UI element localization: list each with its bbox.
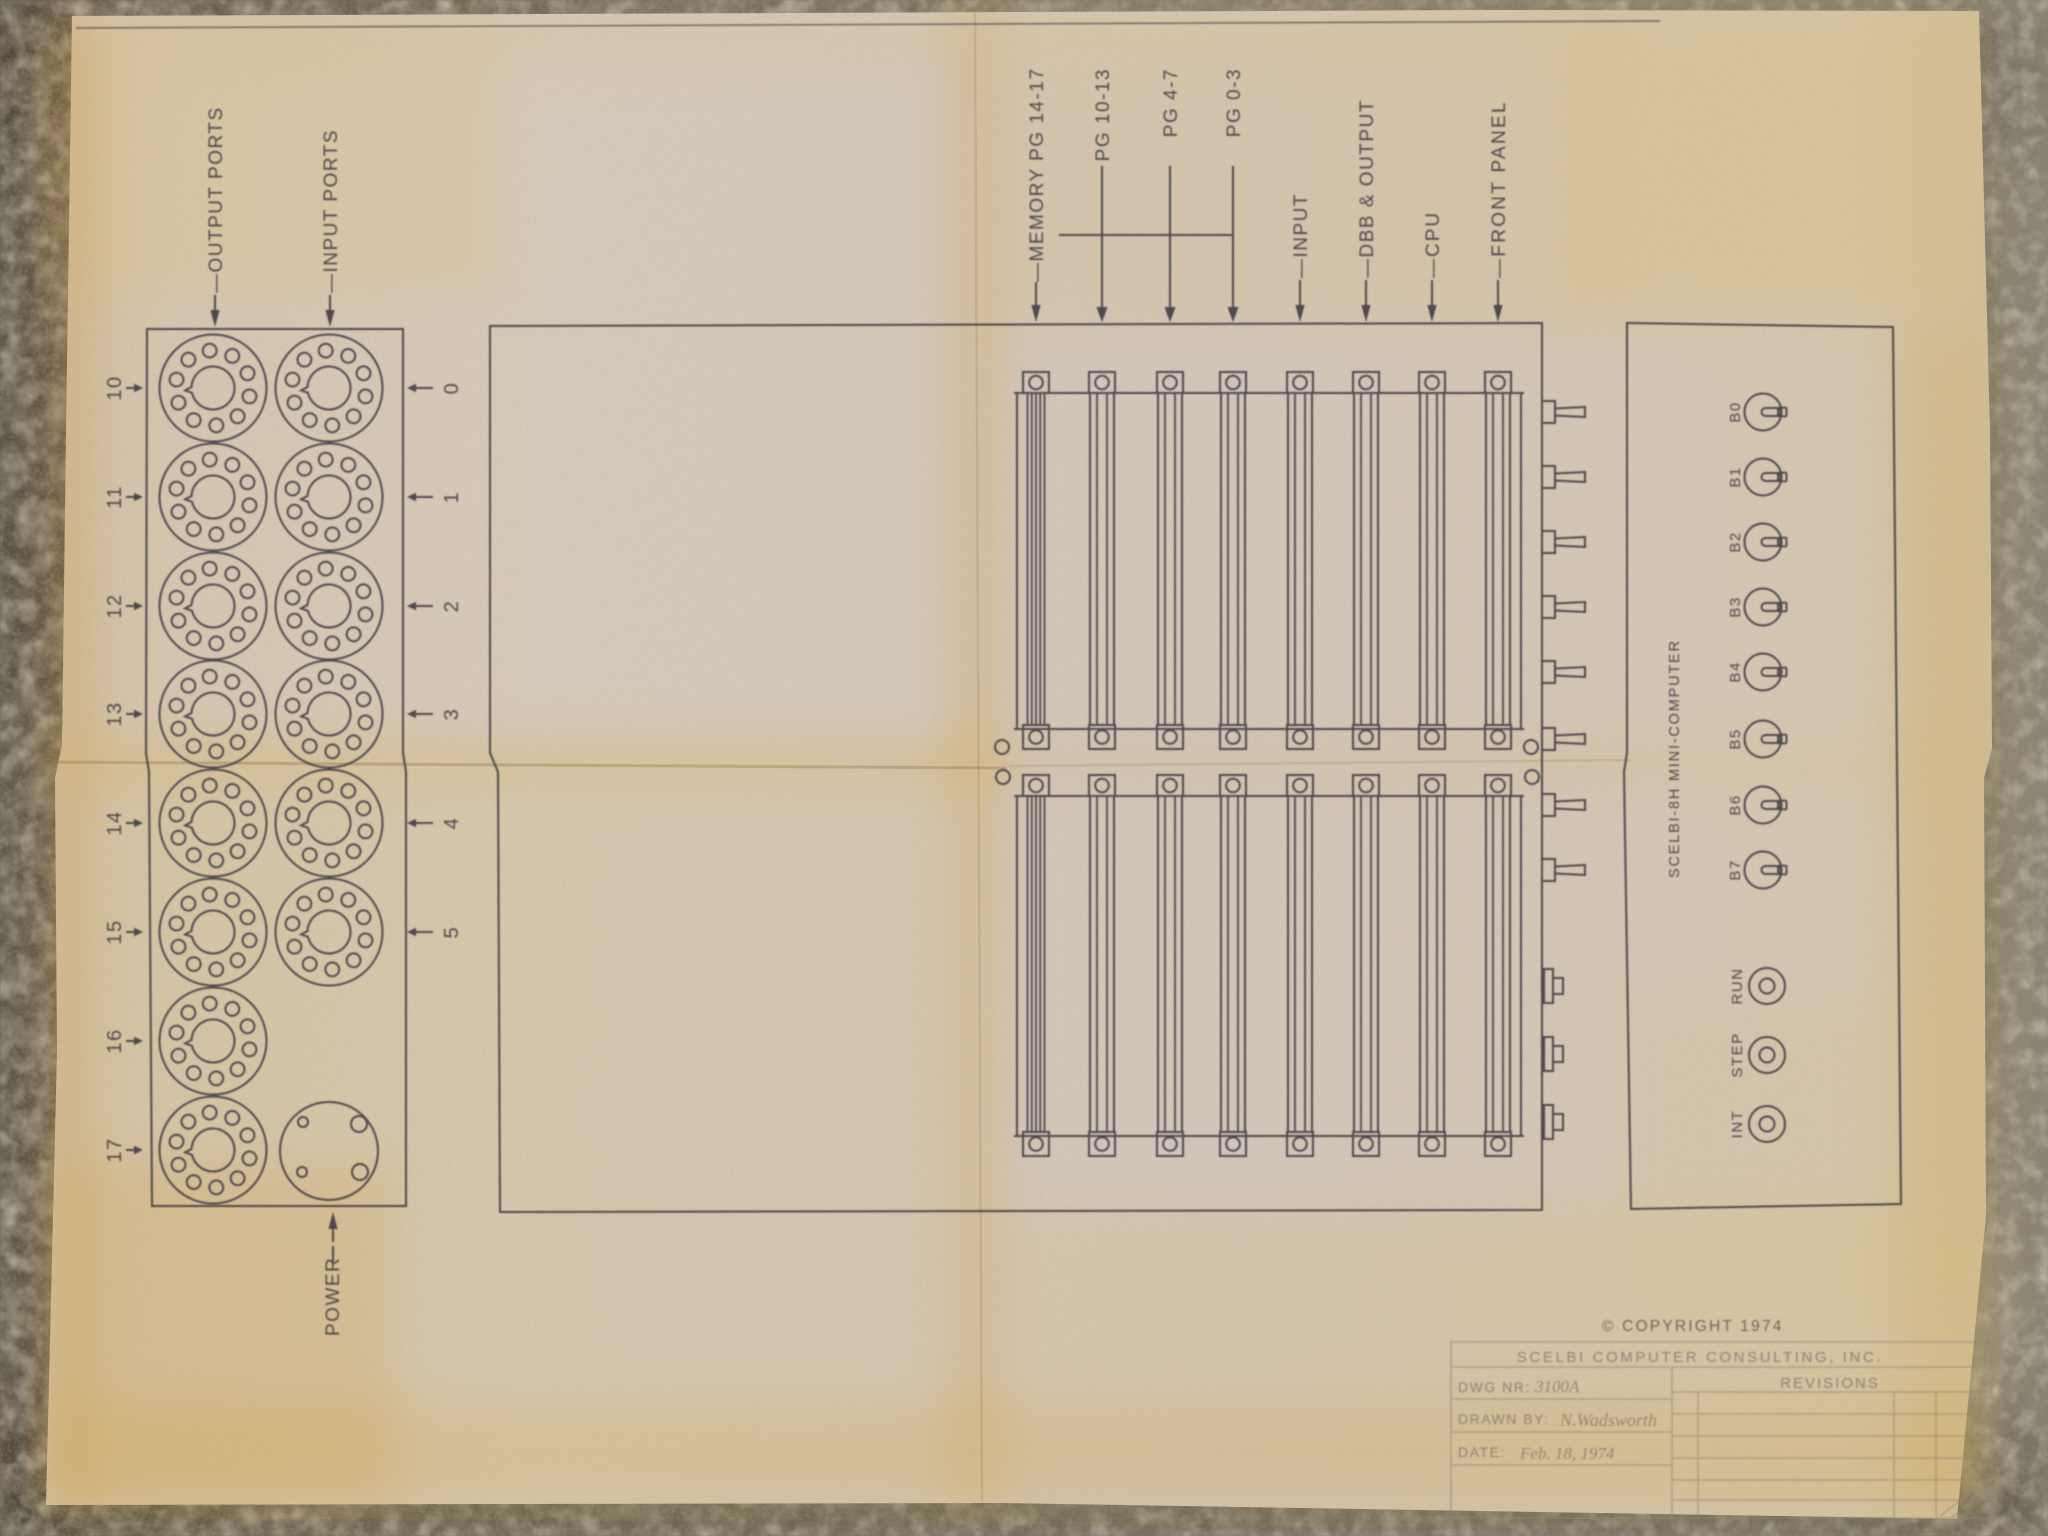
svg-text:—CPU: —CPU — [1423, 211, 1444, 278]
svg-text:10: 10 — [104, 375, 126, 400]
svg-text:11: 11 — [104, 485, 126, 509]
svg-text:POWER: POWER — [323, 1257, 344, 1336]
svg-text:15: 15 — [104, 919, 126, 944]
svg-text:0: 0 — [441, 382, 463, 395]
svg-text:N.Wadsworth: N.Wadsworth — [1559, 1410, 1657, 1430]
svg-text:2: 2 — [441, 600, 463, 613]
svg-text:B6: B6 — [1727, 794, 1744, 815]
svg-text:13: 13 — [104, 701, 126, 726]
svg-text:—DBB & OUTPUT: —DBB & OUTPUT — [1357, 99, 1378, 278]
svg-text:SCELBI-8H MINI-COMPUTER: SCELBI-8H MINI-COMPUTER — [1667, 639, 1683, 878]
svg-text:B7: B7 — [1727, 859, 1744, 880]
svg-text:INT: INT — [1729, 1110, 1746, 1139]
svg-text:B5: B5 — [1727, 728, 1744, 749]
svg-text:© COPYRIGHT 1974: © COPYRIGHT 1974 — [1602, 1318, 1784, 1335]
svg-text:—MEMORY PG 14-17: —MEMORY PG 14-17 — [1027, 68, 1048, 282]
svg-text:B3: B3 — [1727, 596, 1744, 617]
svg-text:—INPUT PORTS: —INPUT PORTS — [321, 129, 342, 293]
svg-text:14: 14 — [104, 810, 126, 835]
svg-text:B2: B2 — [1727, 531, 1744, 552]
svg-text:PG 4-7: PG 4-7 — [1161, 68, 1182, 137]
svg-text:B0: B0 — [1727, 401, 1744, 422]
svg-text:1: 1 — [441, 491, 463, 504]
svg-text:17: 17 — [104, 1137, 126, 1162]
svg-text:DWG NR:: DWG NR: — [1458, 1379, 1531, 1395]
svg-text:12: 12 — [104, 593, 126, 618]
svg-text:16: 16 — [104, 1028, 126, 1053]
svg-text:B1: B1 — [1727, 466, 1744, 487]
svg-text:PG 10-13: PG 10-13 — [1093, 68, 1114, 161]
svg-text:DRAWN BY:: DRAWN BY: — [1458, 1411, 1550, 1427]
svg-text:B4: B4 — [1727, 661, 1744, 682]
svg-text:RUN: RUN — [1729, 968, 1746, 1005]
svg-text:Feb. 18, 1974: Feb. 18, 1974 — [1519, 1444, 1615, 1463]
svg-text:4: 4 — [441, 817, 463, 830]
svg-text:5: 5 — [441, 926, 463, 939]
svg-text:REVISIONS: REVISIONS — [1780, 1375, 1880, 1392]
svg-text:STEP: STEP — [1729, 1032, 1746, 1077]
svg-text:—INPUT: —INPUT — [1291, 193, 1312, 278]
svg-text:DATE:: DATE: — [1458, 1444, 1506, 1460]
svg-text:3100A: 3100A — [1534, 1377, 1580, 1396]
svg-text:—OUTPUT PORTS: —OUTPUT PORTS — [206, 106, 227, 293]
svg-text:PG 0-3: PG 0-3 — [1224, 68, 1245, 137]
svg-text:—FRONT PANEL: —FRONT PANEL — [1489, 100, 1510, 278]
svg-text:SCELBI COMPUTER CONSULTING,: SCELBI COMPUTER CONSULTING, INC. — [1517, 1349, 1883, 1366]
svg-text:3: 3 — [441, 708, 463, 721]
